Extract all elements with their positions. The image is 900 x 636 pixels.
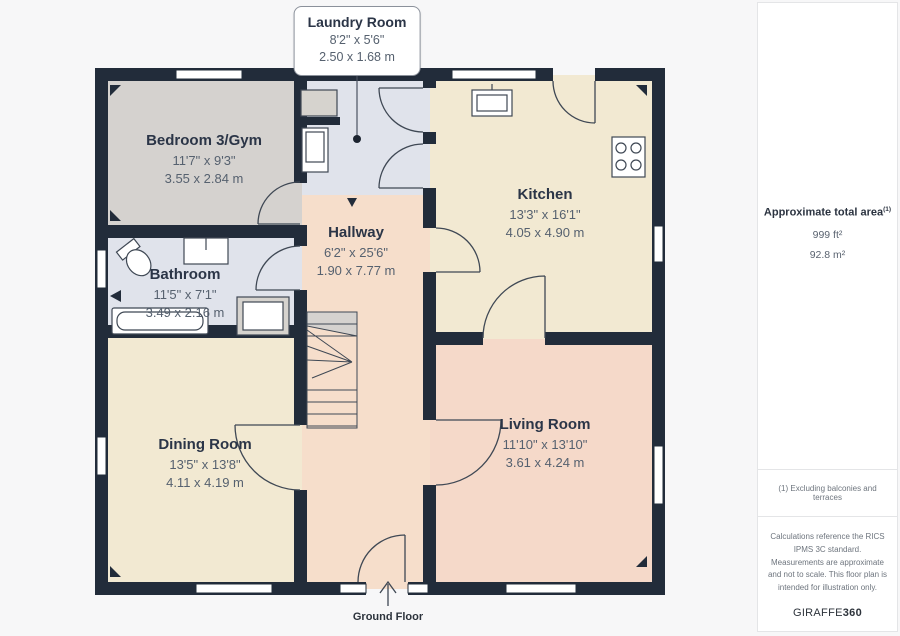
room-name: Bathroom bbox=[146, 266, 225, 283]
footnote-marker: (1) bbox=[883, 206, 891, 213]
room-dims-imperial: 6'2" x 25'6" bbox=[317, 244, 396, 262]
window bbox=[408, 584, 428, 593]
room-dims-imperial: 11'5" x 7'1" bbox=[146, 286, 225, 304]
room-name: Kitchen bbox=[506, 186, 585, 203]
window bbox=[340, 584, 366, 593]
room-dims-imperial: 11'7" x 9'3" bbox=[146, 152, 262, 170]
room-dims-metric: 4.11 x 4.19 m bbox=[158, 474, 251, 492]
brand-number-part: 360 bbox=[843, 607, 862, 619]
total-area-block: Approximate total area(1) 999 ft² 92.8 m… bbox=[758, 3, 897, 469]
callout-title: Laundry Room bbox=[308, 14, 407, 30]
room-name: Bedroom 3/Gym bbox=[146, 132, 262, 149]
room-name: Living Room bbox=[500, 416, 591, 433]
room-dims-metric: 4.05 x 4.90 m bbox=[506, 224, 585, 242]
room-label-dining: Dining Room 13'5" x 13'8" 4.11 x 4.19 m bbox=[158, 436, 251, 492]
room-name: Hallway bbox=[317, 224, 396, 241]
room-dims-metric: 3.61 x 4.24 m bbox=[500, 454, 591, 472]
giraffe360-logo: GIRAFFE360 bbox=[767, 607, 888, 619]
window bbox=[452, 70, 536, 79]
room-label-bathroom: Bathroom 11'5" x 7'1" 3.49 x 2.16 m bbox=[146, 266, 225, 322]
laundry-room-callout: Laundry Room 8'2" x 5'6" 2.50 x 1.68 m bbox=[294, 6, 421, 76]
callout-metric: 2.50 x 1.68 m bbox=[308, 49, 407, 66]
window bbox=[97, 250, 106, 288]
info-panel: Approximate total area(1) 999 ft² 92.8 m… bbox=[757, 2, 898, 632]
floorplan-page: Laundry Room 8'2" x 5'6" 2.50 x 1.68 m B… bbox=[0, 0, 900, 636]
disclaimer-block: Calculations reference the RICS IPMS 3C … bbox=[758, 517, 897, 631]
total-area-title: Approximate total area(1) bbox=[764, 206, 891, 219]
window bbox=[97, 437, 106, 475]
dryer-icon bbox=[302, 128, 328, 172]
brand-name-part: GIRAFFE bbox=[793, 607, 843, 619]
room-label-living: Living Room 11'10" x 13'10" 3.61 x 4.24 … bbox=[500, 416, 591, 472]
total-area-title-text: Approximate total area bbox=[764, 207, 883, 219]
shower-icon bbox=[237, 297, 289, 335]
bathroom-sink-icon bbox=[184, 238, 228, 264]
room-name: Dining Room bbox=[158, 436, 251, 453]
stove-icon bbox=[612, 137, 645, 177]
room-label-bedroom: Bedroom 3/Gym 11'7" x 9'3" 3.55 x 2.84 m bbox=[146, 132, 262, 188]
window bbox=[506, 584, 576, 593]
washing-machine-icon bbox=[301, 90, 337, 116]
window bbox=[196, 584, 272, 593]
room-dims-imperial: 13'3" x 16'1" bbox=[506, 206, 585, 224]
window bbox=[654, 446, 663, 504]
room-dims-metric: 1.90 x 7.77 m bbox=[317, 262, 396, 280]
total-area-ft: 999 ft² bbox=[813, 226, 843, 246]
callout-imperial: 8'2" x 5'6" bbox=[308, 32, 407, 49]
room-dims-metric: 3.55 x 2.84 m bbox=[146, 170, 262, 188]
total-area-m: 92.8 m² bbox=[810, 246, 846, 266]
room-dims-imperial: 13'5" x 13'8" bbox=[158, 456, 251, 474]
room-dims-imperial: 11'10" x 13'10" bbox=[500, 436, 591, 454]
room-dims-metric: 3.49 x 2.16 m bbox=[146, 304, 225, 322]
floor-label: Ground Floor bbox=[353, 611, 423, 623]
disclaimer-text: Calculations reference the RICS IPMS 3C … bbox=[767, 531, 888, 595]
window bbox=[654, 226, 663, 262]
room-label-kitchen: Kitchen 13'3" x 16'1" 4.05 x 4.90 m bbox=[506, 186, 585, 242]
area-footnote: (1) Excluding balconies and terraces bbox=[758, 469, 897, 517]
callout-anchor-dot bbox=[353, 135, 361, 143]
room-label-hallway: Hallway 6'2" x 25'6" 1.90 x 7.77 m bbox=[317, 224, 396, 280]
window bbox=[176, 70, 242, 79]
